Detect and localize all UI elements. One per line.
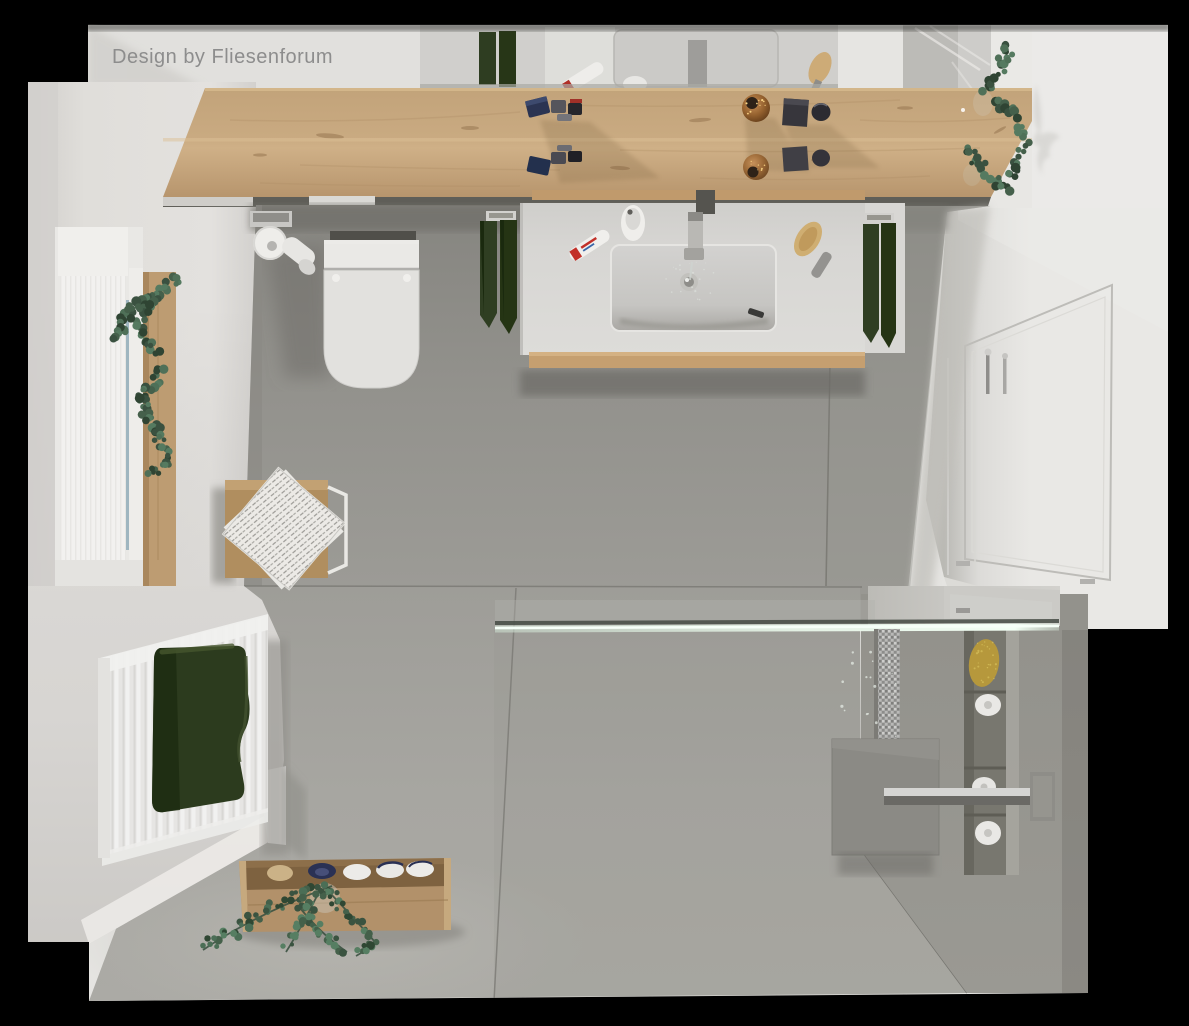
svg-text:Design by Fliesenforum: Design by Fliesenforum xyxy=(112,46,333,68)
